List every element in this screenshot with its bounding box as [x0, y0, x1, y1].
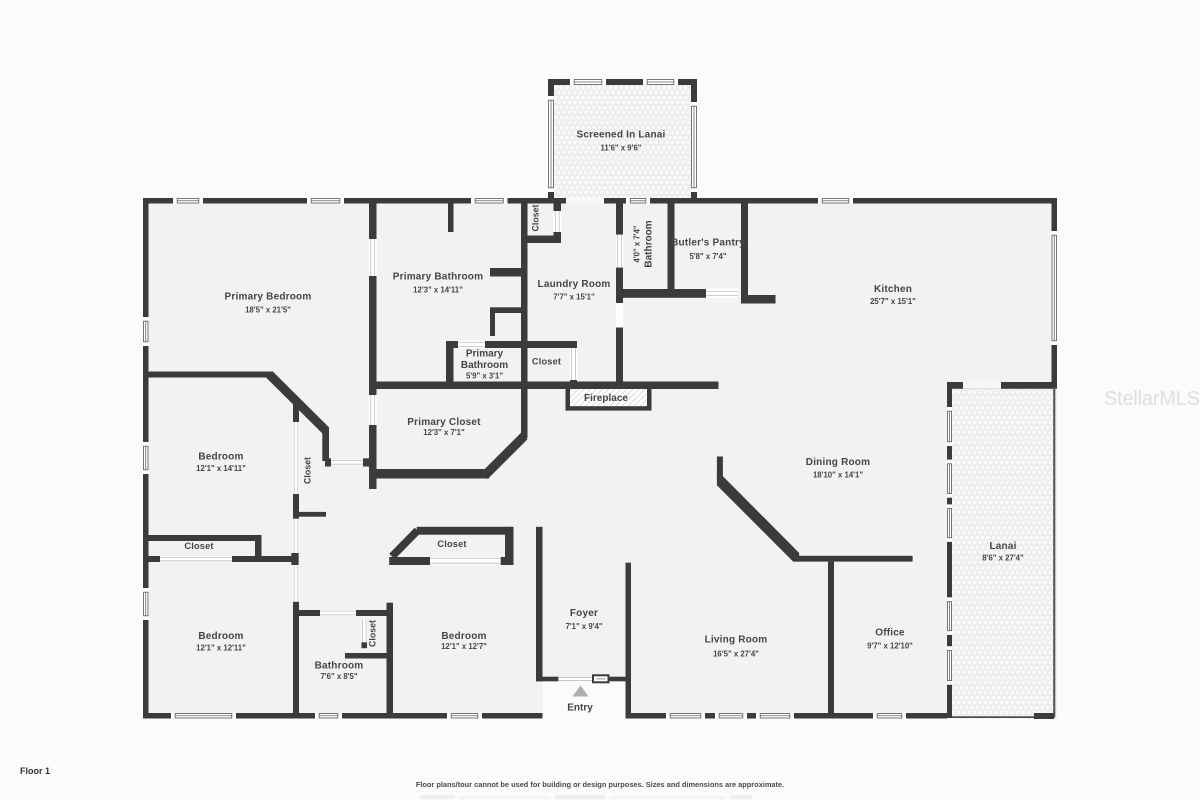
svg-text:Closet: Closet	[532, 357, 561, 367]
svg-text:Living Room: Living Room	[705, 635, 768, 646]
svg-text:Bedroom: Bedroom	[198, 452, 243, 463]
svg-text:Bathroom: Bathroom	[315, 661, 364, 672]
svg-text:11'6" x 9'6": 11'6" x 9'6"	[600, 144, 641, 153]
svg-text:5'9" x 3'1": 5'9" x 3'1"	[466, 372, 503, 381]
svg-text:18'10" x 14'1": 18'10" x 14'1"	[813, 471, 863, 480]
svg-text:Screened In Lanai: Screened In Lanai	[577, 130, 666, 141]
svg-text:Butler's Pantry: Butler's Pantry	[671, 238, 745, 249]
svg-text:12'1" x 12'11": 12'1" x 12'11"	[196, 644, 246, 653]
svg-text:5'8" x 7'4": 5'8" x 7'4"	[689, 252, 726, 261]
svg-text:Primary: Primary	[466, 349, 504, 360]
svg-text:Laundry Room: Laundry Room	[538, 279, 611, 290]
svg-text:9'7" x 12'10": 9'7" x 12'10"	[867, 642, 913, 651]
svg-text:25'7" x 15'1": 25'7" x 15'1"	[870, 297, 916, 306]
svg-text:Bathroom: Bathroom	[461, 360, 508, 371]
svg-text:StellarMLS: StellarMLS	[1104, 388, 1200, 410]
svg-text:Closet: Closet	[437, 539, 466, 549]
svg-text:7'6" x 8'5": 7'6" x 8'5"	[320, 672, 357, 681]
svg-text:Kitchen: Kitchen	[874, 284, 912, 295]
svg-text:Closet: Closet	[531, 204, 541, 231]
svg-text:Dining Room: Dining Room	[806, 457, 870, 468]
svg-text:16'5" x 27'4": 16'5" x 27'4"	[713, 650, 759, 659]
svg-text:Office: Office	[875, 628, 905, 639]
svg-text:18'5" x 21'5": 18'5" x 21'5"	[245, 306, 291, 315]
svg-text:Entry: Entry	[567, 703, 593, 714]
svg-text:Primary Bathroom: Primary Bathroom	[393, 272, 483, 283]
svg-text:Floor 1: Floor 1	[20, 766, 50, 776]
svg-text:7'1" x 9'4": 7'1" x 9'4"	[565, 622, 602, 631]
svg-text:12'3" x 14'11": 12'3" x 14'11"	[413, 286, 463, 295]
svg-text:Bedroom: Bedroom	[198, 631, 243, 642]
svg-text:Floor plans/tour cannot be use: Floor plans/tour cannot be used for buil…	[416, 780, 784, 789]
svg-text:Bedroom: Bedroom	[441, 631, 486, 642]
svg-text:Foyer: Foyer	[570, 608, 598, 619]
svg-text:Primary Closet: Primary Closet	[407, 417, 481, 428]
svg-text:Closet: Closet	[303, 457, 313, 484]
svg-text:8'6" x 27'4": 8'6" x 27'4"	[982, 554, 1024, 563]
svg-text:Bathroom: Bathroom	[644, 220, 655, 267]
svg-text:7'7" x 15'1": 7'7" x 15'1"	[553, 293, 595, 302]
svg-text:Closet: Closet	[368, 620, 378, 647]
svg-text:Lanai: Lanai	[989, 541, 1016, 552]
svg-text:Primary Bedroom: Primary Bedroom	[225, 292, 312, 303]
svg-text:12'1" x 14'11": 12'1" x 14'11"	[196, 464, 246, 473]
svg-text:Closet: Closet	[184, 541, 213, 551]
svg-text:12'1" x 12'7": 12'1" x 12'7"	[441, 642, 487, 651]
svg-text:12'3" x 7'1": 12'3" x 7'1"	[423, 428, 465, 437]
svg-text:4'0" x 7'4": 4'0" x 7'4"	[632, 225, 641, 262]
svg-text:Fireplace: Fireplace	[584, 393, 628, 404]
